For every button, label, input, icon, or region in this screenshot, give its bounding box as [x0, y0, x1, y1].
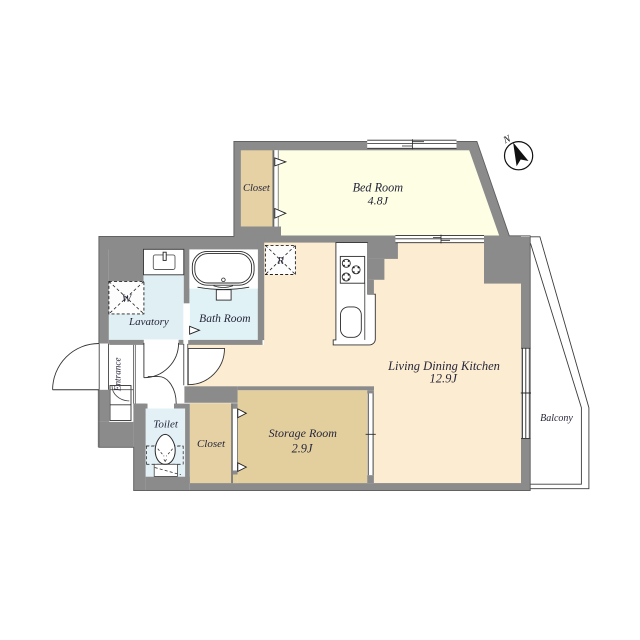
svg-text:Toilet: Toilet	[153, 419, 179, 431]
svg-text:Storage Room: Storage Room	[269, 426, 338, 440]
svg-text:Bed Room: Bed Room	[353, 181, 404, 195]
svg-text:Closet: Closet	[243, 183, 271, 194]
svg-text:R: R	[276, 256, 284, 267]
svg-text:Bath Room: Bath Room	[199, 313, 250, 325]
svg-text:12.9J: 12.9J	[429, 372, 458, 386]
svg-text:Entrance: Entrance	[112, 357, 122, 392]
svg-text:W: W	[122, 293, 133, 305]
svg-text:2.9J: 2.9J	[292, 442, 313, 456]
svg-text:Lavatory: Lavatory	[128, 316, 169, 328]
svg-text:4.8J: 4.8J	[368, 194, 389, 208]
svg-text:Closet: Closet	[197, 438, 226, 450]
svg-text:Balcony: Balcony	[540, 413, 573, 424]
